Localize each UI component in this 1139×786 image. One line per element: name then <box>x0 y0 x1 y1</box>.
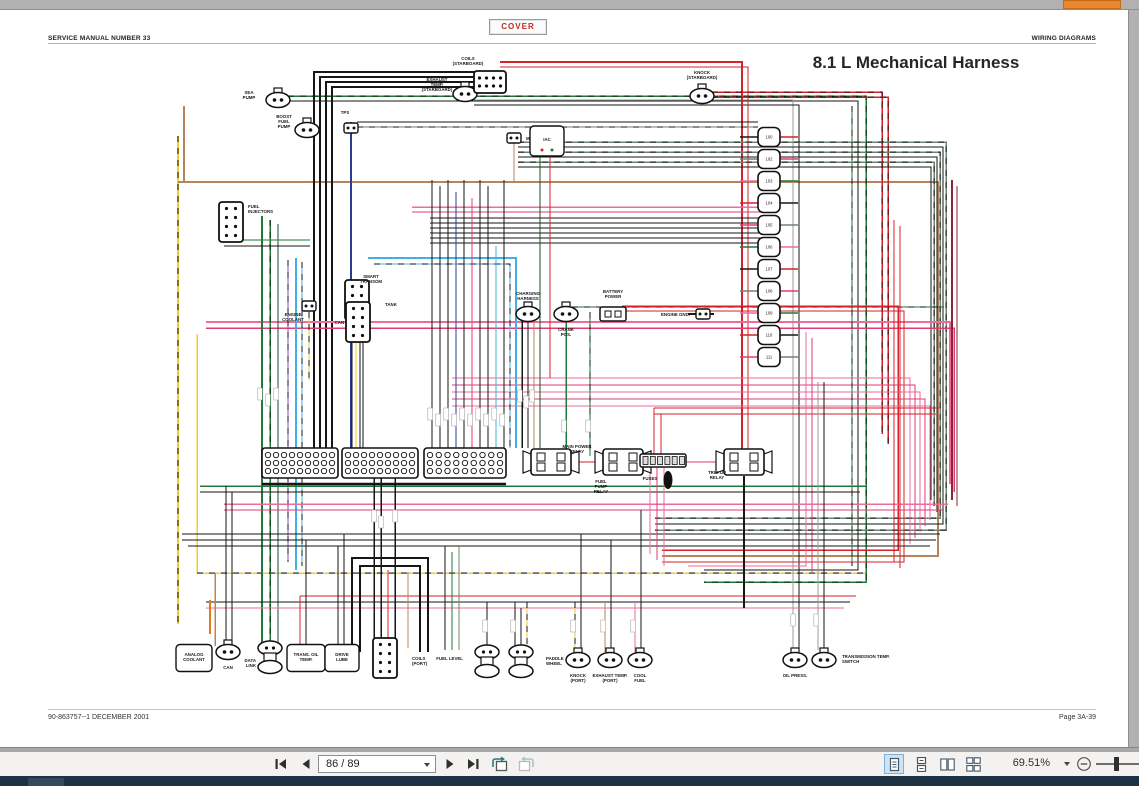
svg-text:(STARBOARD): (STARBOARD) <box>453 61 484 66</box>
svg-text:INJECTORS: INJECTORS <box>248 209 273 214</box>
last-page-button[interactable] <box>464 755 482 773</box>
svg-text:POWER: POWER <box>605 294 622 299</box>
component-sea-pump: SEAPUMP <box>243 88 290 108</box>
next-view-button[interactable] <box>515 755 537 773</box>
component-boost-fuel-pump: BOOSTFUELPUMP <box>276 114 319 138</box>
ecm-connector <box>262 448 506 484</box>
component-data-link: DATALINK <box>244 641 282 674</box>
component-knock-port: KNOCK(PORT) <box>566 648 590 683</box>
svg-text:HARNESS: HARNESS <box>517 296 539 301</box>
component-knock-starboard: KNOCK(STARBOARD) <box>687 70 718 104</box>
svg-text:(PORT): (PORT) <box>412 661 428 666</box>
svg-text:RELAY: RELAY <box>570 449 585 454</box>
svg-text:LUBE: LUBE <box>336 657 348 662</box>
component-transmission-temp-switch: TRANSMISSION TEMP.SWITCH <box>812 648 890 668</box>
top-scrollbar-track[interactable] <box>0 0 1139 10</box>
component-trans-oil-temp: TRANS. OILTEMP. <box>287 645 325 672</box>
facing-view-button[interactable] <box>937 754 957 774</box>
component-fuel-injectors: FUELINJECTORS <box>219 202 273 242</box>
svg-text:LINK: LINK <box>246 663 257 668</box>
svg-text:OIL PRESS.: OIL PRESS. <box>783 673 808 678</box>
component-can-bottom: CAN <box>216 640 240 670</box>
page-number-value: 86 / 89 <box>326 758 360 770</box>
next-page-button[interactable] <box>441 755 459 773</box>
zoom-dropdown-caret-icon[interactable] <box>1064 762 1070 766</box>
svg-text:COOLANT: COOLANT <box>183 657 205 662</box>
svg-text:WHEEL: WHEEL <box>546 661 562 666</box>
svg-text:107: 107 <box>766 267 774 272</box>
footer-left-text: 90-863757--1 DECEMBER 2001 <box>48 714 149 721</box>
component-exhaust-temp-port: EXHAUST TEMP.(PORT) <box>592 648 627 683</box>
svg-text:109: 109 <box>766 311 774 316</box>
page-number-combobox[interactable]: 86 / 89 <box>318 755 436 773</box>
svg-text:(STARBOARD): (STARBOARD) <box>422 87 453 92</box>
document-page: COVER SERVICE MANUAL NUMBER 33 WIRING DI… <box>0 10 1128 747</box>
svg-text:106: 106 <box>766 245 774 250</box>
component-tank: TANK <box>385 302 398 307</box>
first-page-button[interactable] <box>272 755 290 773</box>
svg-text:TEMP.: TEMP. <box>300 657 313 662</box>
continuous-facing-view-button[interactable] <box>963 754 983 774</box>
component-analog-coolant: ANALOGCOOLANT <box>176 645 212 672</box>
component-can-mid: CAN <box>334 302 370 342</box>
svg-text:SWITCH: SWITCH <box>842 659 859 664</box>
svg-text:104: 104 <box>766 201 774 206</box>
svg-text:TANK: TANK <box>385 302 398 307</box>
component-engine-coolant: ENGINECOOLANT <box>282 301 316 322</box>
footer-right-text: Page 3A-39 <box>1059 714 1096 721</box>
previous-view-button[interactable] <box>488 755 510 773</box>
zoom-out-button[interactable] <box>1075 755 1093 773</box>
pdf-viewer-window: COVER SERVICE MANUAL NUMBER 33 WIRING DI… <box>0 0 1139 786</box>
svg-text:108: 108 <box>766 289 774 294</box>
component-exhaust-temp-starboard: EXHAUSTTEMP.(STARBOARD) <box>422 77 477 102</box>
svg-text:PUMP: PUMP <box>278 124 291 129</box>
svg-text:CAN: CAN <box>223 665 233 670</box>
svg-text:PUMP: PUMP <box>243 95 256 100</box>
status-bar <box>0 776 1139 786</box>
continuous-view-button[interactable] <box>911 754 931 774</box>
svg-text:CAN: CAN <box>334 320 344 325</box>
svg-text:FUEL LEVEL: FUEL LEVEL <box>436 656 463 661</box>
svg-text:(PORT): (PORT) <box>602 678 618 683</box>
wire-layer <box>178 62 957 652</box>
component-charging-harness: CHARGINGHARNESS <box>516 291 541 322</box>
zoom-level-display[interactable]: 69.51% <box>998 757 1050 769</box>
zoom-slider-handle[interactable] <box>1114 757 1119 771</box>
component-oil-press: OIL PRESS. <box>783 648 808 678</box>
component-cool-fuel: COOLFUEL <box>628 648 652 683</box>
component-tps: TPS <box>341 110 358 133</box>
previous-page-button[interactable] <box>297 755 315 773</box>
svg-text:IAC: IAC <box>543 137 551 142</box>
svg-text:100: 100 <box>766 135 774 140</box>
footer-rule <box>48 709 1096 710</box>
svg-text:(PORT): (PORT) <box>570 678 586 683</box>
svg-text:102: 102 <box>766 157 774 162</box>
wiring-diagram: 100102103104105106107108109110111SEAPUMP… <box>0 10 1128 747</box>
svg-text:POS.: POS. <box>561 332 572 337</box>
svg-text:RELAY: RELAY <box>594 489 609 494</box>
bottom-toolbar: 86 / 89 69.51% <box>0 752 1139 776</box>
svg-text:RELAY: RELAY <box>710 475 725 480</box>
combobox-caret-icon[interactable] <box>424 763 430 767</box>
svg-text:111: 111 <box>766 355 773 360</box>
svg-text:103: 103 <box>766 179 774 184</box>
component-paddle-wheel: PADDLEWHEEL <box>509 645 564 678</box>
svg-text:ENGINE GND.: ENGINE GND. <box>661 312 690 317</box>
component-drive-lube: DRIVELUBE <box>325 645 359 672</box>
component-battery-power: BATTERYPOWER <box>600 289 626 321</box>
status-bar-segment <box>28 778 64 786</box>
component-main-power-relay: MAIN POWERRELAY <box>523 444 592 475</box>
svg-text:COOLANT: COOLANT <box>282 317 304 322</box>
top-scrollbar-thumb[interactable] <box>1063 0 1121 9</box>
svg-text:(STARBOARD): (STARBOARD) <box>687 75 718 80</box>
svg-text:105: 105 <box>766 223 774 228</box>
single-page-view-button[interactable] <box>884 754 904 774</box>
component-trim-up-relay: TRIM UPRELAY <box>708 449 772 480</box>
component-iac: IAC <box>530 126 564 156</box>
svg-text:FUSES: FUSES <box>643 476 658 481</box>
svg-text:TPS: TPS <box>341 110 350 115</box>
svg-text:TRANSOM: TRANSOM <box>360 279 383 284</box>
vertical-scrollbar-track[interactable] <box>1128 10 1139 747</box>
svg-text:110: 110 <box>766 333 773 338</box>
svg-text:FUEL: FUEL <box>634 678 646 683</box>
